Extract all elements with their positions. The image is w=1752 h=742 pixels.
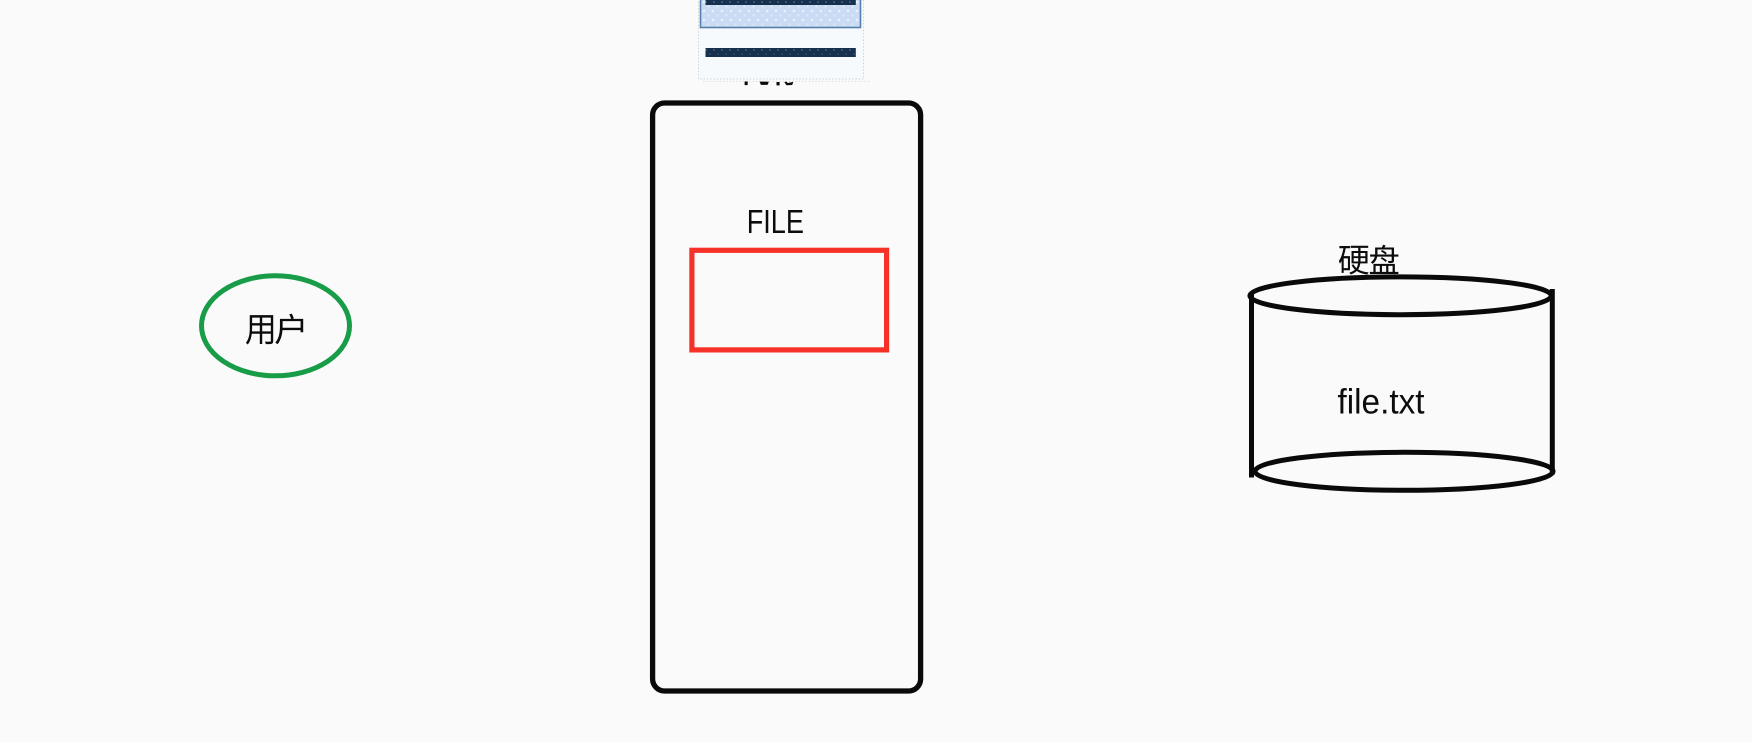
svg-text:file.txt: file.txt — [1338, 383, 1425, 422]
svg-text:FILE: FILE — [747, 204, 804, 241]
